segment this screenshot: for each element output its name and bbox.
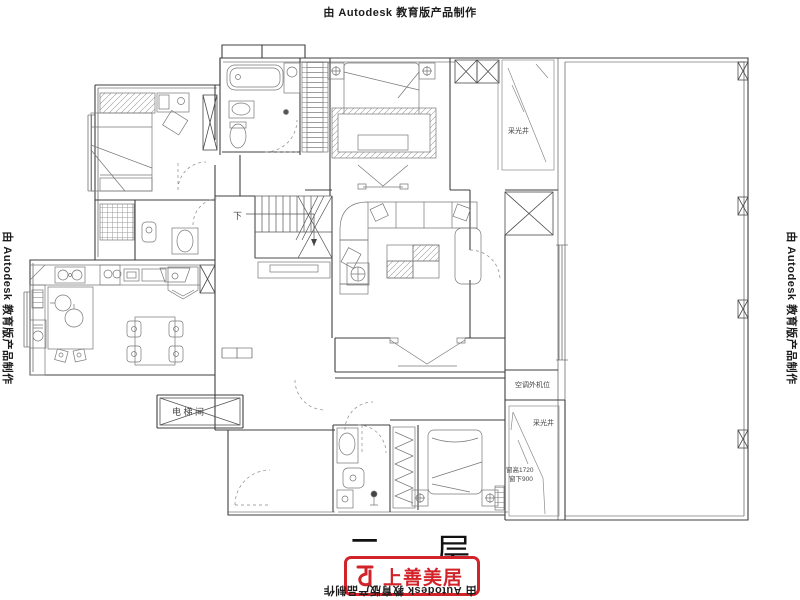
light-well-bottom-label: 采光井 [533,418,554,427]
stairs-down-label: 下 [233,211,242,221]
staircase [246,196,332,258]
light-well-top-label: 采光井 [508,126,529,135]
kitchen-dining-furniture [30,265,200,375]
elevator-label: 电 梯 间 [172,406,204,417]
bedroom-topleft-furniture [91,93,189,191]
floor-plan-drawing: 下 电 梯 间 采光井 采光井 空调外机位 窗高1720 窗下900 [0,0,800,600]
bedroom-bottom-furniture [393,427,504,510]
floorplan-sheet: 由 Autodesk 教育版产品制作 由 Autodesk 教育版产品制作 由 … [0,0,800,600]
window-sill-label: 窗下900 [509,474,533,483]
bathroom-bottom-fixtures [337,428,378,508]
window-height-label: 窗高1720 [506,465,534,474]
structural-columns [200,60,748,448]
autodesk-watermark-bottom: 由 Autodesk 教育版产品制作 [0,583,800,599]
ac-outdoor-unit-label: 空调外机位 [515,380,550,389]
corridor-washroom-fixtures [100,204,198,282]
living-room-furniture [258,202,481,366]
